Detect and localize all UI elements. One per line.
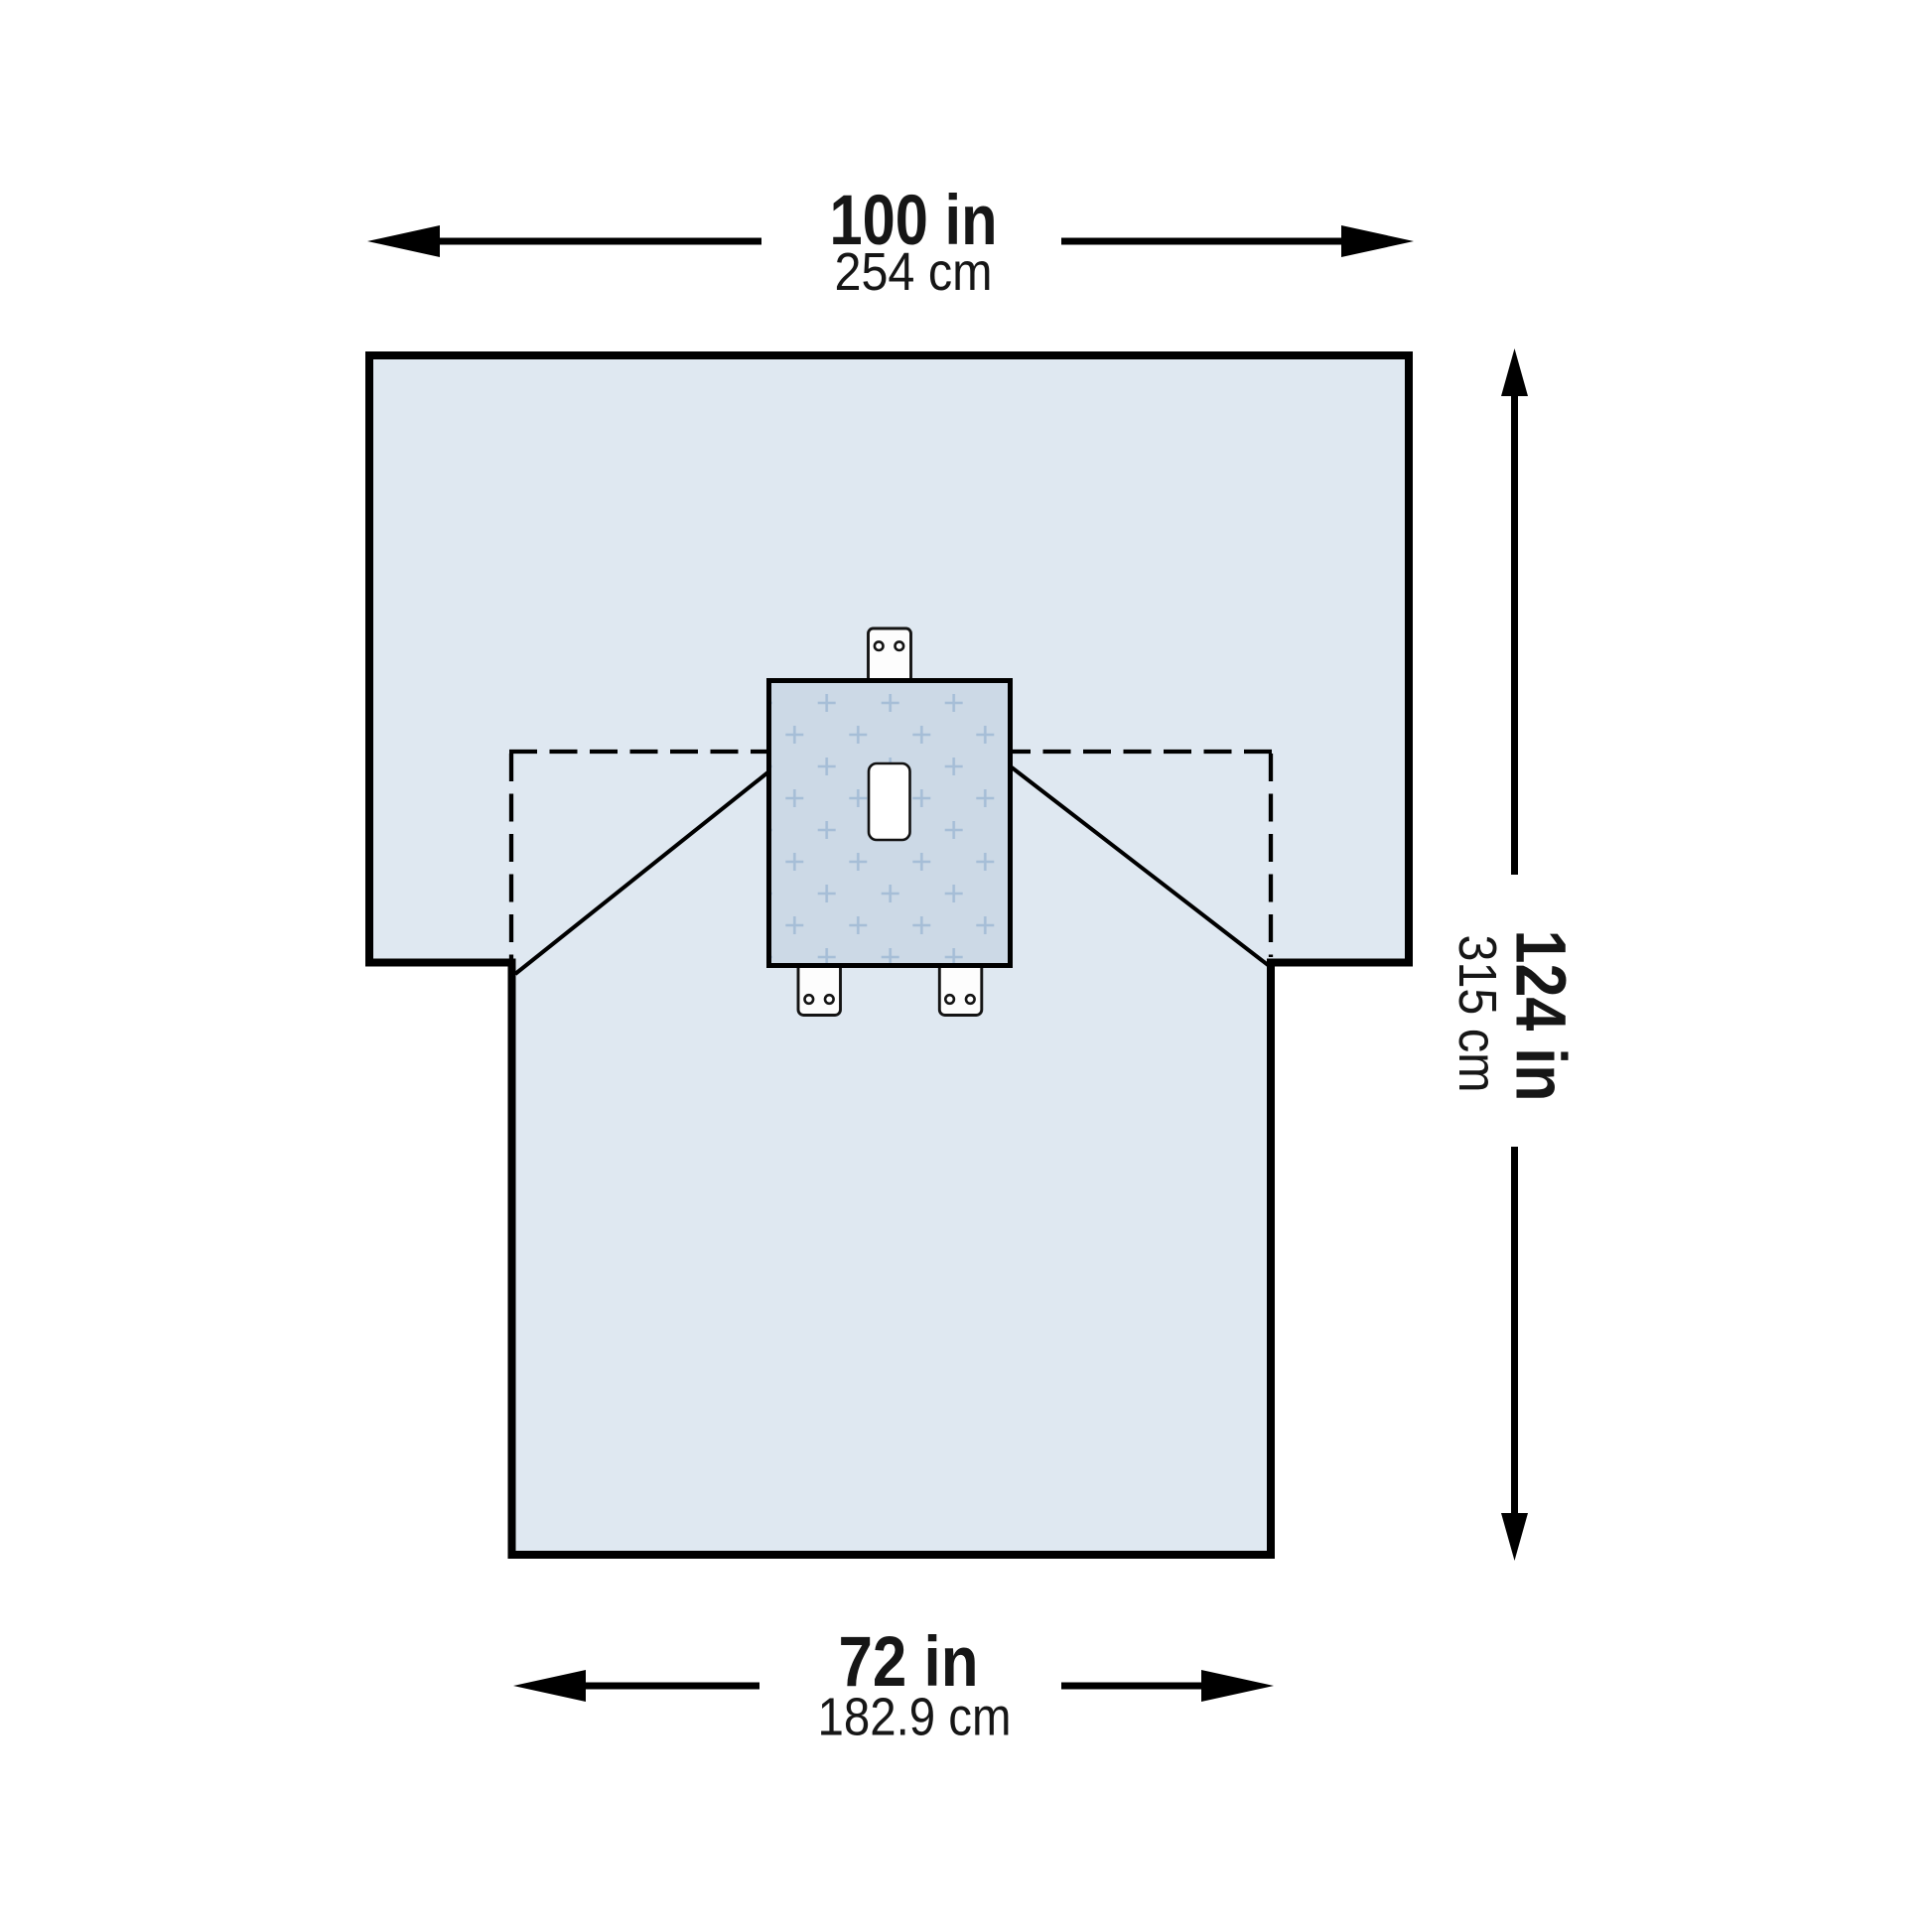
svg-text:315 cm: 315 cm xyxy=(1448,935,1507,1093)
svg-text:182.9 cm: 182.9 cm xyxy=(818,1688,1012,1747)
svg-text:254 cm: 254 cm xyxy=(835,242,993,302)
svg-text:124 in: 124 in xyxy=(1501,930,1581,1102)
